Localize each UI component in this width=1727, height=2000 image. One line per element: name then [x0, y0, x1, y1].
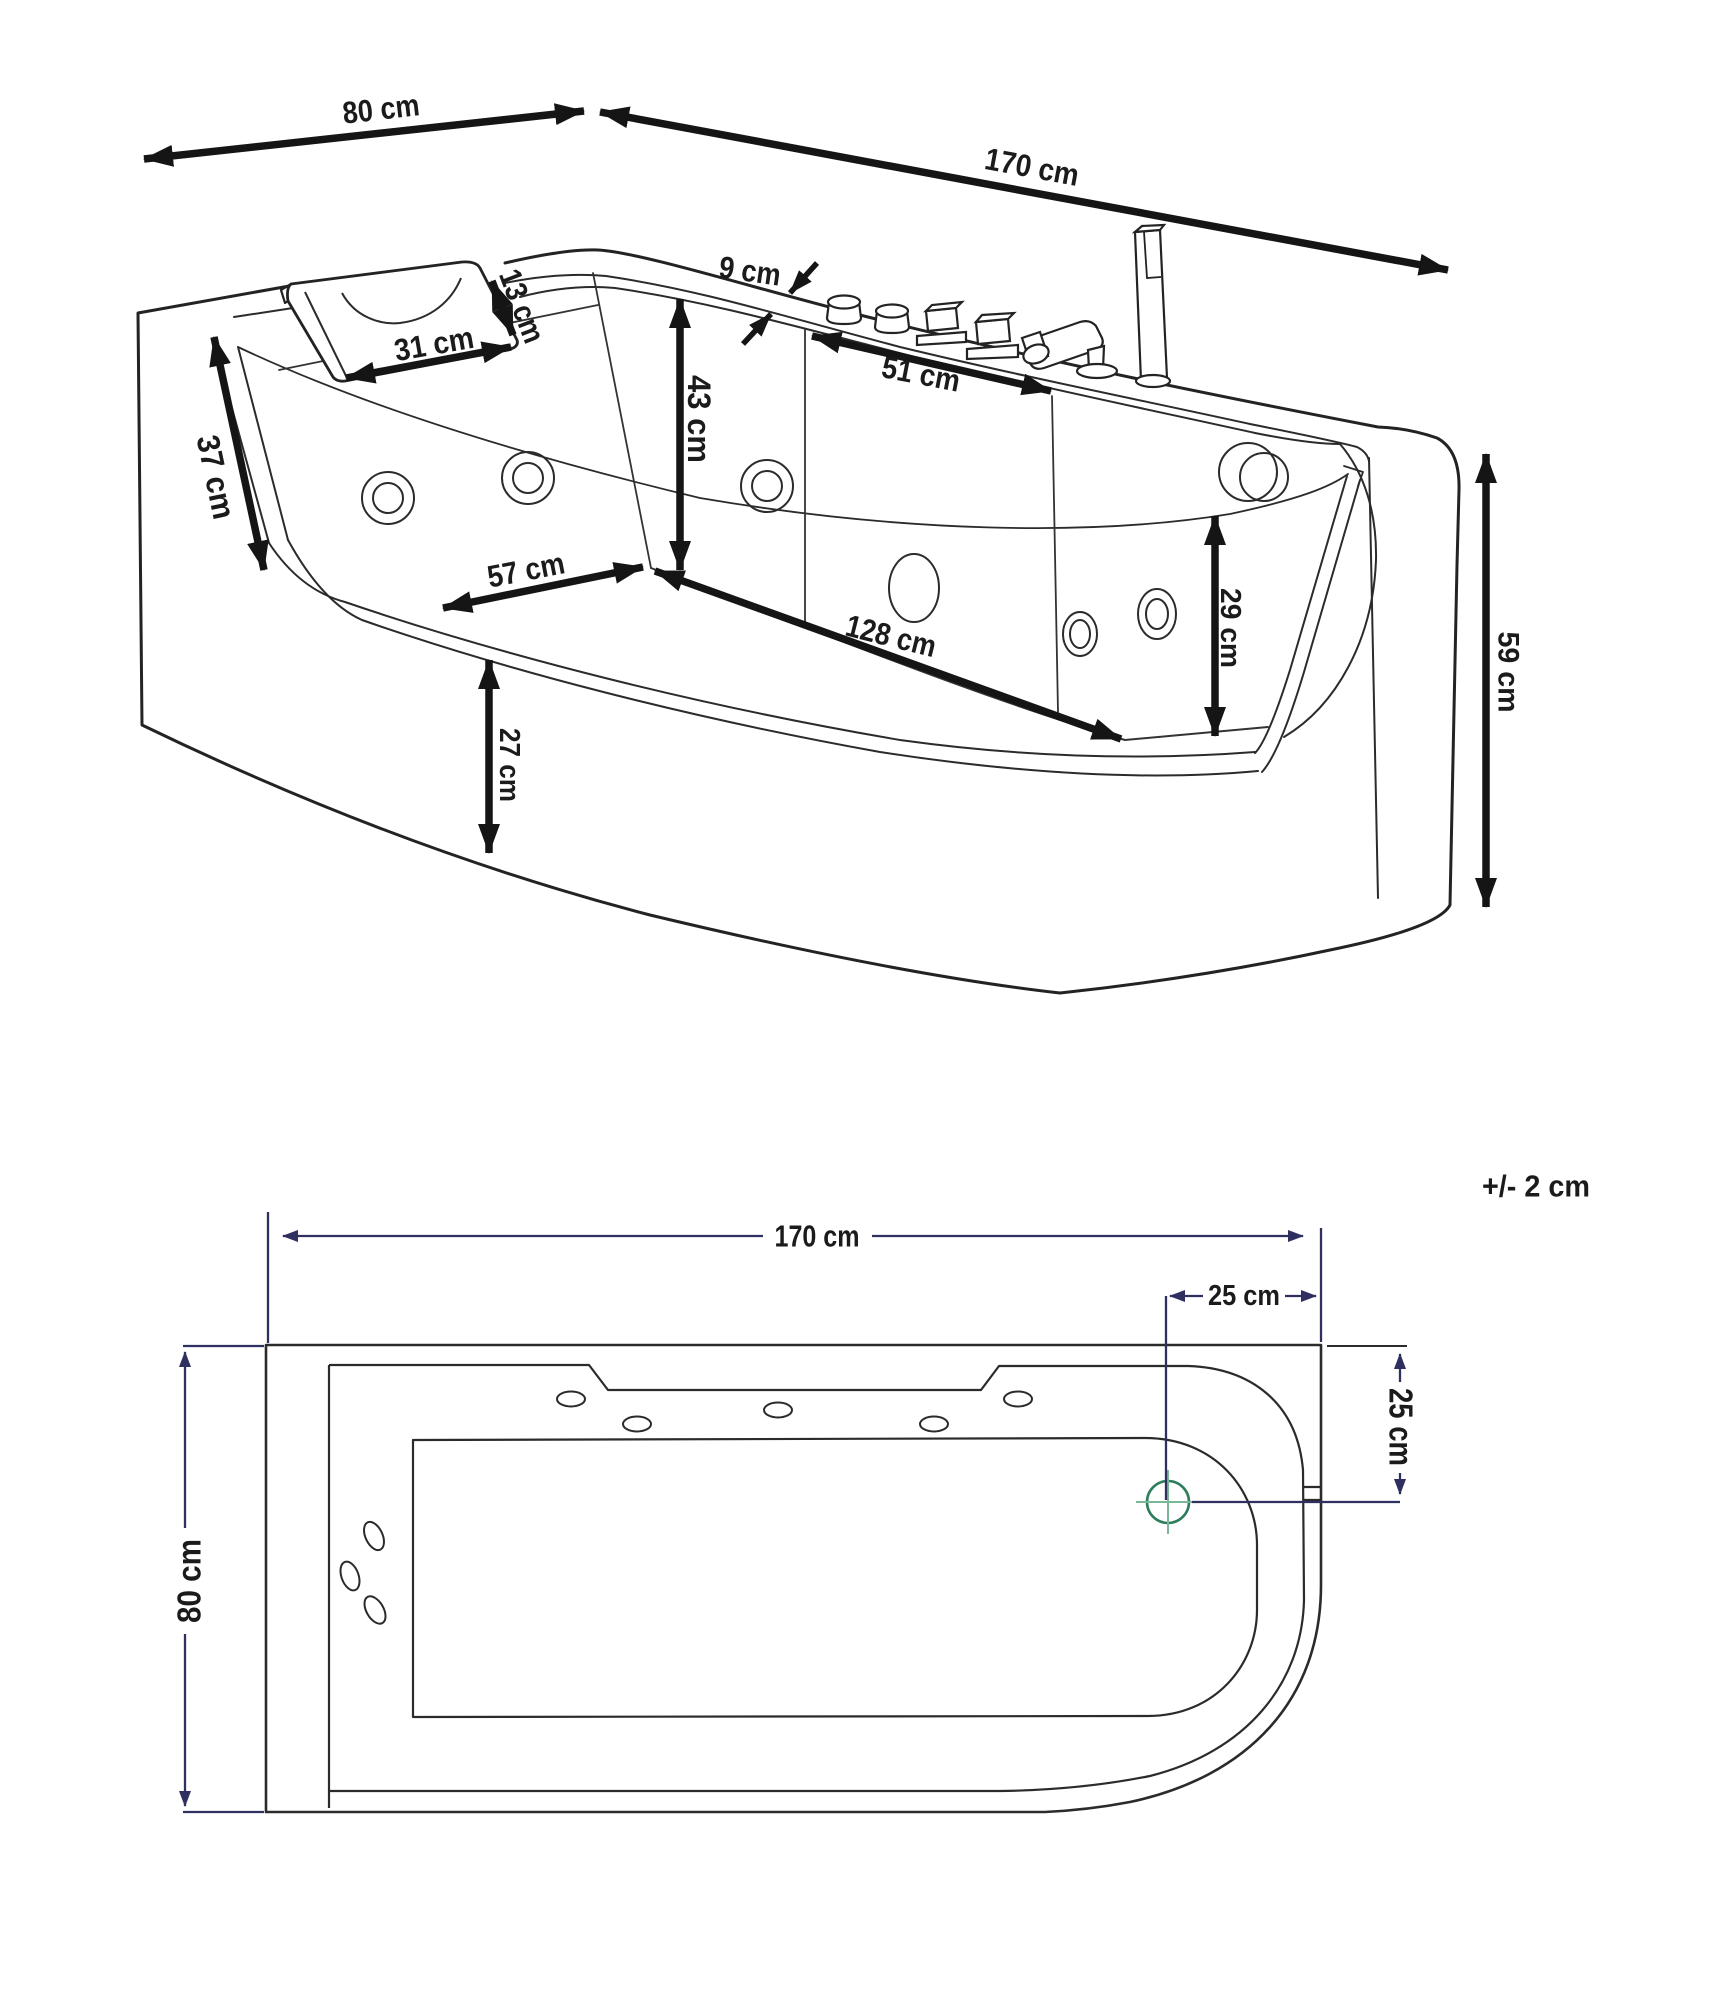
svg-text:29 cm: 29 cm — [1214, 588, 1246, 668]
svg-text:25 cm: 25 cm — [1383, 1388, 1420, 1466]
svg-text:9 cm: 9 cm — [717, 249, 783, 292]
svg-text:80 cm: 80 cm — [171, 1539, 208, 1623]
svg-text:51 cm: 51 cm — [879, 349, 963, 398]
svg-text:80 cm: 80 cm — [341, 87, 421, 130]
svg-text:59 cm: 59 cm — [1492, 632, 1525, 713]
svg-text:+/- 2 cm: +/- 2 cm — [1482, 1169, 1590, 1204]
svg-text:25 cm: 25 cm — [1208, 1280, 1280, 1312]
svg-text:27 cm: 27 cm — [493, 728, 525, 802]
svg-text:170 cm: 170 cm — [775, 1219, 860, 1254]
svg-text:43 cm: 43 cm — [681, 375, 717, 463]
